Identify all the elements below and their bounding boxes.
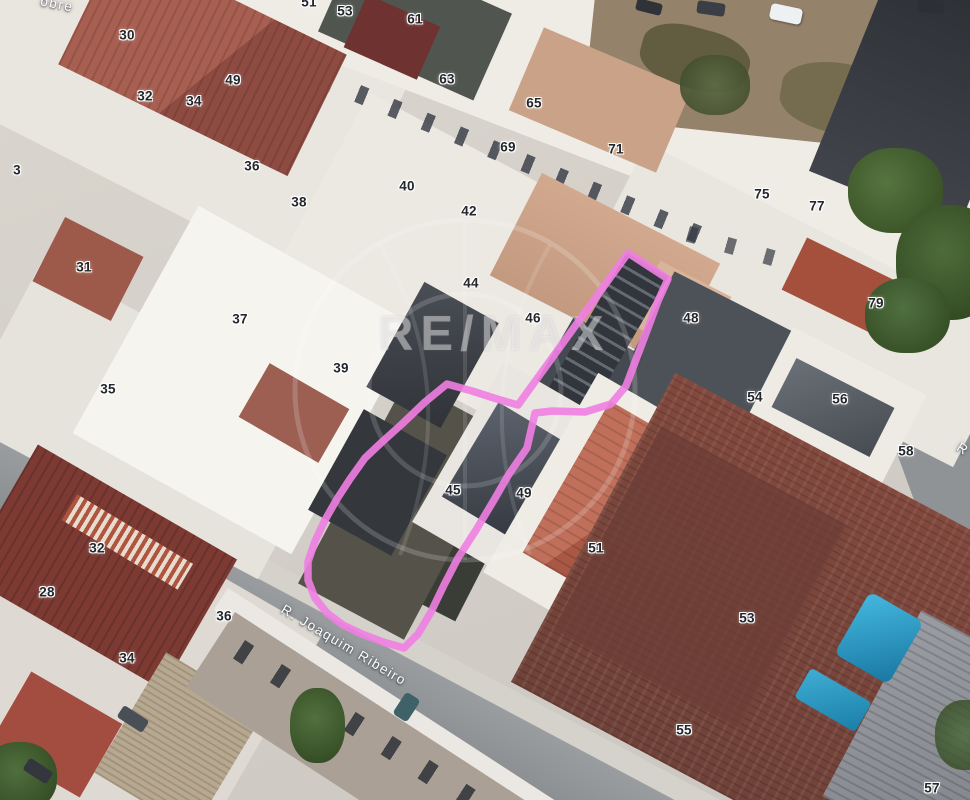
house-number-label: 32 xyxy=(89,541,104,556)
street-name-label: obre xyxy=(39,0,75,15)
house-number-label: 71 xyxy=(608,142,623,157)
house-number-label: 34 xyxy=(119,651,134,666)
house-number-label: 34 xyxy=(186,94,201,109)
house-number-label: 57 xyxy=(924,781,939,796)
house-number-label: 40 xyxy=(399,179,414,194)
house-number-label: 35 xyxy=(100,382,115,397)
aerial-map-view: RE/MAX 515330614963323465697133640753877… xyxy=(0,0,970,800)
house-number-label: 51 xyxy=(588,541,603,556)
house-number-label: 55 xyxy=(676,723,691,738)
house-number-label: 49 xyxy=(516,486,531,501)
house-number-label: 53 xyxy=(337,4,352,19)
house-number-label: 49 xyxy=(225,73,240,88)
house-number-label: 61 xyxy=(407,12,422,27)
house-number-label: 79 xyxy=(868,296,883,311)
house-number-label: 63 xyxy=(439,72,454,87)
house-number-label: 48 xyxy=(683,311,698,326)
house-number-label: 28 xyxy=(39,585,54,600)
house-number-label: 65 xyxy=(526,96,541,111)
house-number-label: 51 xyxy=(301,0,316,10)
house-number-label: 42 xyxy=(461,204,476,219)
house-number-label: 45 xyxy=(445,483,460,498)
house-number-label: 56 xyxy=(832,392,847,407)
house-number-label: 77 xyxy=(809,199,824,214)
house-number-label: 37 xyxy=(232,312,247,327)
house-number-label: 30 xyxy=(119,28,134,43)
house-number-label: 32 xyxy=(137,89,152,104)
map-labels-layer: 5153306149633234656971336407538774231447… xyxy=(0,0,970,800)
house-number-label: 36 xyxy=(244,159,259,174)
street-name-label: R xyxy=(954,440,970,459)
street-name-label: R. Joaquim Ribeiro xyxy=(279,602,410,689)
house-number-label: 44 xyxy=(463,276,478,291)
house-number-label: 39 xyxy=(333,361,348,376)
house-number-label: 75 xyxy=(754,187,769,202)
house-number-label: 58 xyxy=(898,444,913,459)
house-number-label: 69 xyxy=(500,140,515,155)
house-number-label: 54 xyxy=(747,390,762,405)
house-number-label: 3 xyxy=(13,163,21,178)
house-number-label: 53 xyxy=(739,611,754,626)
house-number-label: 46 xyxy=(525,311,540,326)
house-number-label: 38 xyxy=(291,195,306,210)
house-number-label: 36 xyxy=(216,609,231,624)
house-number-label: 31 xyxy=(76,260,91,275)
